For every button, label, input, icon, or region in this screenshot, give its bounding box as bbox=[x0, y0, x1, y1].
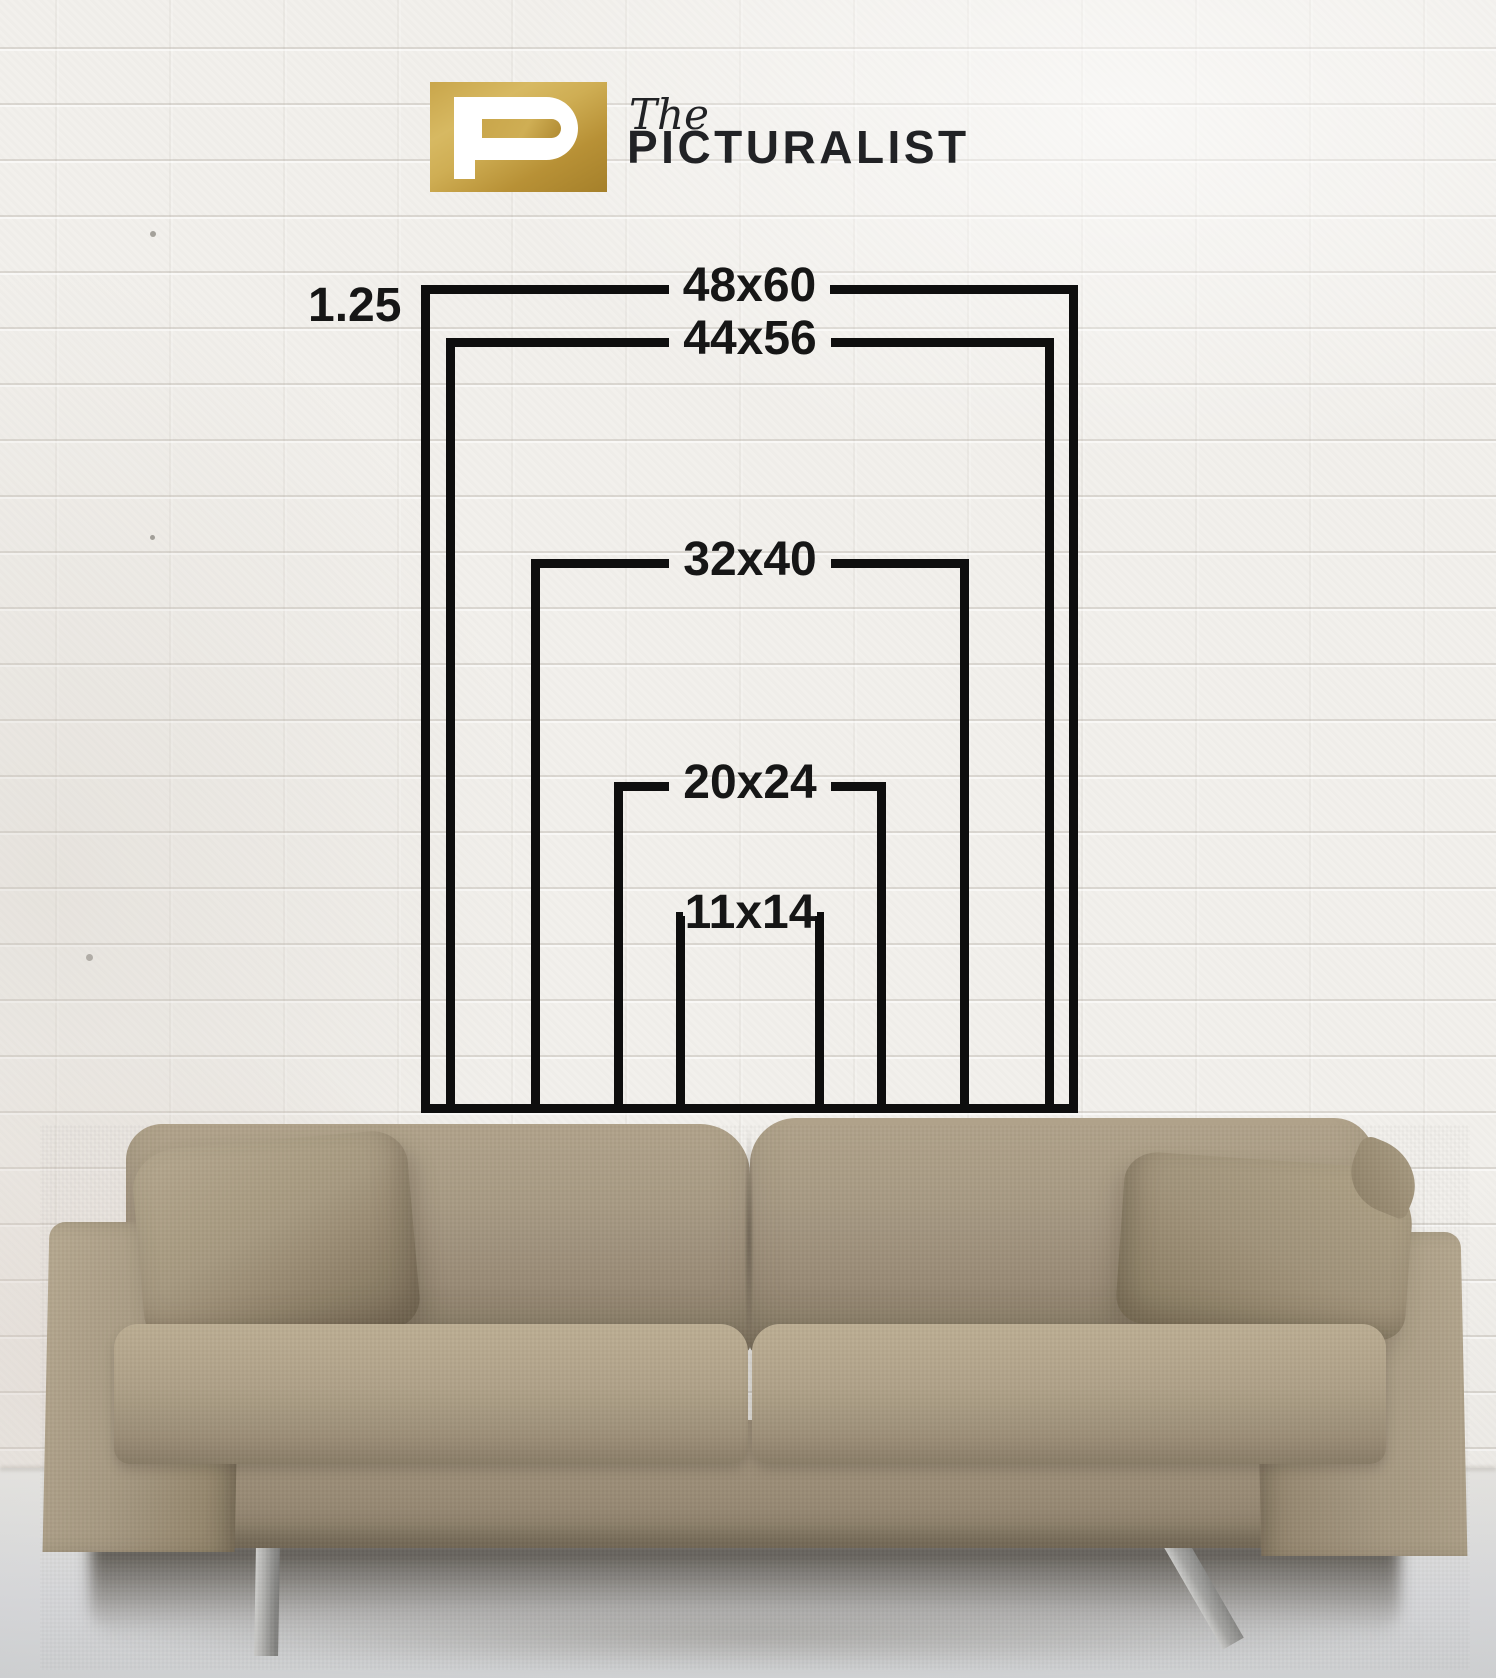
size-rect-top-edge: 44x56 bbox=[446, 318, 1054, 366]
size-label: 11x14 bbox=[683, 889, 818, 937]
top-line-right bbox=[830, 285, 1078, 294]
size-rect-11x14: 11x14 bbox=[676, 916, 824, 1113]
size-label: 48x60 bbox=[669, 262, 830, 310]
moulding-width-label: 1.25 bbox=[308, 282, 401, 330]
size-label: 44x56 bbox=[669, 315, 830, 363]
size-rect-top-edge: 32x40 bbox=[531, 539, 969, 587]
top-line-right bbox=[831, 782, 886, 791]
logo-gold-square bbox=[430, 82, 607, 192]
size-rect-top-edge: 48x60 bbox=[421, 265, 1078, 313]
top-line-right bbox=[831, 559, 969, 568]
size-label: 32x40 bbox=[669, 536, 830, 584]
top-line-right bbox=[831, 338, 1054, 347]
size-rect-top-edge: 11x14 bbox=[676, 892, 824, 940]
top-line-left bbox=[531, 559, 669, 568]
sofa-seat-cushion-right bbox=[752, 1324, 1386, 1464]
sofa-seat-cushion-left bbox=[114, 1324, 748, 1464]
wall-nail-hole bbox=[150, 231, 156, 237]
sofa-back-center-seam bbox=[744, 1128, 754, 1346]
wall-nail-hole bbox=[86, 954, 93, 961]
size-label: 20x24 bbox=[669, 759, 830, 807]
scene: The PICTURALIST 1.25 48x60 44x56 32x40 2… bbox=[0, 0, 1496, 1678]
top-line-left bbox=[676, 912, 683, 921]
logo-p-bowl bbox=[454, 97, 578, 160]
size-rect-top-edge: 20x24 bbox=[614, 762, 886, 810]
sofa-left-throw-pillow bbox=[130, 1128, 422, 1349]
top-line-left bbox=[421, 285, 669, 294]
wall-nail-hole bbox=[150, 535, 155, 540]
sofa-right-throw-pillow bbox=[1114, 1150, 1415, 1342]
top-line-right bbox=[817, 912, 824, 921]
top-line-left bbox=[446, 338, 669, 347]
brand-name: PICTURALIST bbox=[627, 124, 970, 170]
sofa-left-leg bbox=[254, 1546, 280, 1656]
top-line-left bbox=[614, 782, 669, 791]
logo-p-slot bbox=[482, 119, 561, 138]
